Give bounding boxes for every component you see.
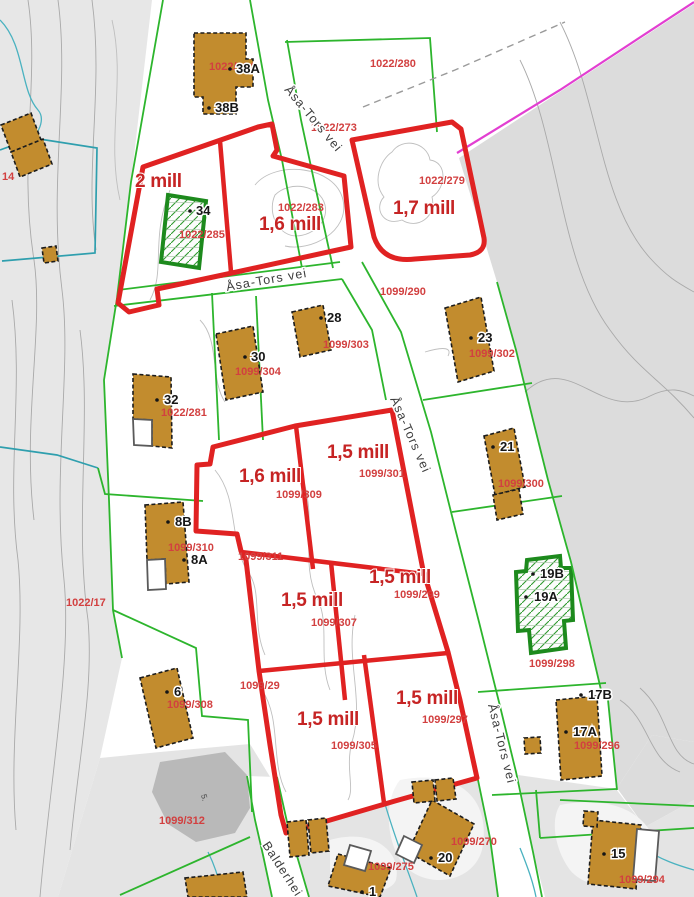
building-balderhei-b: [308, 818, 329, 853]
house-number: 8B: [175, 514, 192, 529]
parcel-label: 1099/299: [394, 589, 440, 601]
parcel-label: 1099/275: [368, 861, 414, 873]
cadastral-map[interactable]: 1022/284 1022/280 1022/273 1022/279 1022…: [0, 0, 694, 897]
parcel-label: 1099/304: [235, 366, 282, 378]
garage-8: [147, 559, 166, 590]
parcel-label: 1022/283: [278, 202, 324, 214]
price-label-1099-301[interactable]: 1,5 mill: [327, 442, 389, 463]
house-number: 34: [196, 203, 211, 218]
parcel-label: 1022/281: [161, 407, 207, 419]
house-number: 20: [438, 850, 452, 865]
price-label-1099-309[interactable]: 1,6 mill: [239, 466, 301, 487]
parcel-label: 1099/270: [451, 836, 497, 848]
building-balderhei-a: [287, 820, 309, 857]
house-number: 38B: [215, 100, 239, 115]
building-20-shed-a: [412, 780, 435, 803]
parcel-label: 1099/290: [380, 286, 426, 298]
parcel-label: 1099/303: [323, 339, 369, 351]
house-number: 38A: [236, 61, 260, 76]
building-15-shed: [583, 811, 598, 827]
parcel-label: 1022/17: [66, 597, 106, 609]
parcel-label: 1022/279: [419, 175, 465, 187]
house-number: 32: [164, 392, 178, 407]
house-number: 30: [251, 349, 265, 364]
map-canvas[interactable]: 1022/284 1022/280 1022/273 1022/279 1022…: [0, 0, 694, 897]
house-number: 15: [611, 846, 625, 861]
building-17-shed: [524, 737, 541, 754]
building-topleft-shed: [42, 246, 58, 263]
parcel-label: 1099/309: [276, 489, 322, 501]
house-number: 6: [174, 684, 181, 699]
parcel-label: 1099/301: [359, 468, 405, 480]
parcel-label: 1099/29: [240, 680, 280, 692]
price-label-1022-283[interactable]: 1,6 mill: [259, 214, 321, 235]
price-label-1099-307[interactable]: 1,5 mill: [281, 590, 343, 611]
parcel-label: 14: [2, 171, 15, 183]
parcel-label: 1099/302: [469, 348, 515, 360]
house-number: 23: [478, 330, 492, 345]
house-number: 8A: [191, 552, 208, 567]
price-label-1022-279[interactable]: 1,7 mill: [393, 198, 455, 219]
price-label-1099-305[interactable]: 1,5 mill: [297, 709, 359, 730]
parcel-label: 1099/312: [159, 815, 205, 827]
price-label-1022-285[interactable]: 2 mill: [135, 171, 182, 192]
house-number: 1: [369, 884, 376, 897]
house-number: 19B: [540, 566, 564, 581]
parcel-label: 1022/285: [179, 229, 225, 241]
building-20-shed-b: [435, 778, 456, 801]
parcel-label: 1099/308: [167, 699, 213, 711]
parcel-label: 1099/311: [238, 551, 283, 563]
parcel-label: 1099/296: [574, 740, 620, 752]
parcel-label: 1099/297: [422, 714, 468, 726]
parcel-label: 1099/307: [311, 617, 357, 629]
garage-32: [133, 419, 152, 446]
house-number: 21: [500, 439, 514, 454]
price-label-1099-297[interactable]: 1,5 mill: [396, 688, 458, 709]
parcel-label: 1099/300: [498, 478, 544, 490]
parcel-label: 1099/298: [529, 658, 575, 670]
house-number: 17B: [588, 687, 612, 702]
parcel-label: 1099/305: [331, 740, 377, 752]
house-number: 28: [327, 310, 341, 325]
price-label-1099-299[interactable]: 1,5 mill: [369, 567, 431, 588]
parcel-label: 1099/294: [619, 874, 666, 886]
house-number: 17A: [573, 724, 597, 739]
parcel-label: 1022/280: [370, 58, 416, 70]
house-number: 19A: [534, 589, 558, 604]
